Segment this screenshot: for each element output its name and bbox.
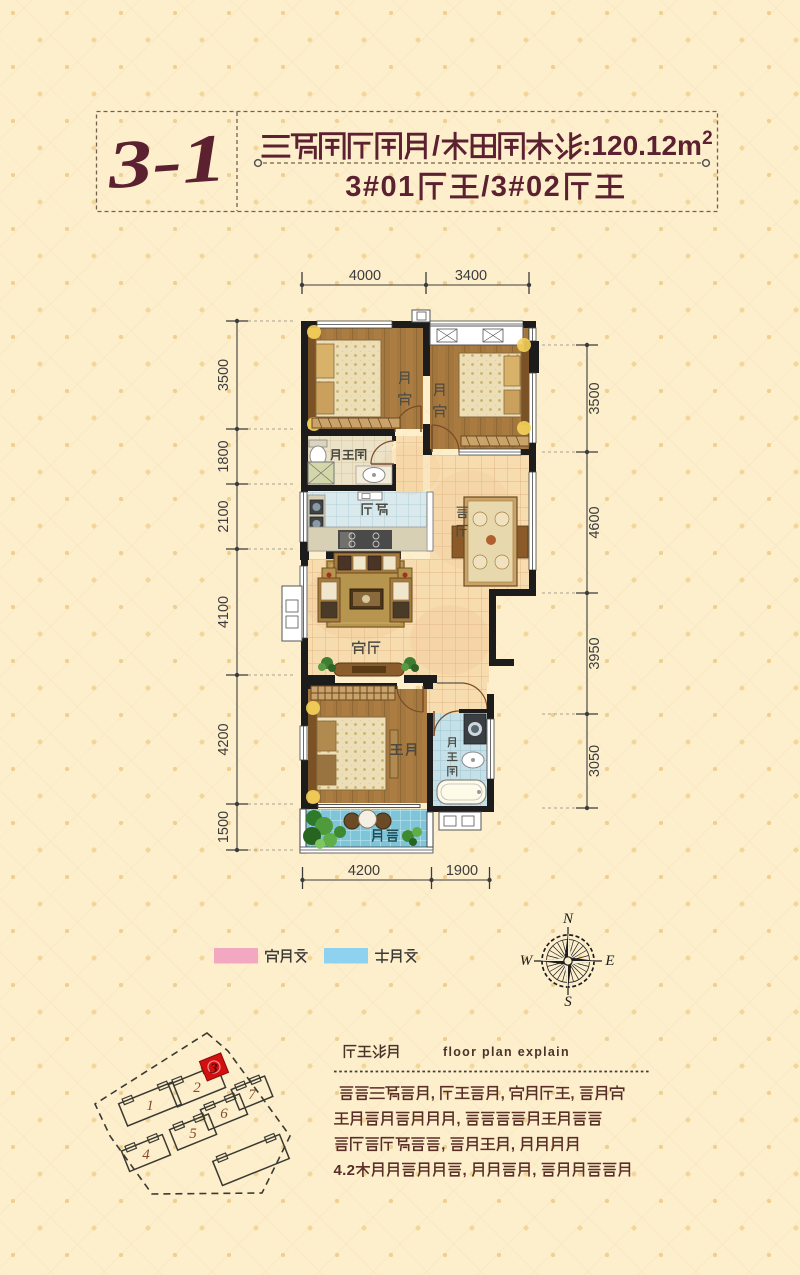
svg-text:1800: 1800	[216, 440, 232, 472]
svg-text:6: 6	[220, 1106, 228, 1122]
svg-text:,: ,	[463, 1162, 467, 1179]
svg-text:,: ,	[532, 1162, 536, 1179]
svg-text:1: 1	[146, 1098, 154, 1114]
svg-text:2100: 2100	[216, 500, 232, 532]
svg-text:,: ,	[501, 1085, 505, 1102]
svg-text:3950: 3950	[587, 637, 603, 669]
svg-text:,: ,	[441, 1136, 445, 1153]
svg-text:3400: 3400	[455, 268, 487, 284]
svg-text:4000: 4000	[349, 268, 381, 284]
svg-text:,: ,	[570, 1085, 574, 1102]
svg-text:4600: 4600	[587, 506, 603, 538]
svg-text:S: S	[564, 994, 572, 1010]
svg-text:/3#02: /3#02	[481, 171, 561, 203]
svg-text:3500: 3500	[587, 382, 603, 414]
svg-text:2: 2	[193, 1080, 201, 1096]
svg-text:4.2: 4.2	[334, 1162, 356, 1179]
svg-text:3: 3	[209, 1061, 218, 1077]
svg-text:4100: 4100	[216, 596, 232, 628]
svg-text:,: ,	[431, 1085, 435, 1102]
svg-text::120.12m: :120.12m	[582, 130, 702, 161]
svg-text:/: /	[432, 130, 440, 161]
svg-text:W: W	[520, 953, 534, 969]
svg-text:3#01: 3#01	[345, 171, 416, 203]
svg-text:4: 4	[142, 1147, 150, 1163]
svg-text:2: 2	[702, 128, 713, 149]
svg-text:3050: 3050	[587, 745, 603, 777]
svg-text:N: N	[562, 911, 574, 927]
svg-text:E: E	[604, 953, 614, 969]
svg-text:3500: 3500	[216, 359, 232, 391]
svg-text:1900: 1900	[446, 863, 478, 879]
svg-text:4200: 4200	[216, 723, 232, 755]
svg-text:,: ,	[456, 1111, 460, 1128]
svg-text:5: 5	[189, 1126, 197, 1142]
svg-text:,: ,	[511, 1136, 515, 1153]
svg-text:4200: 4200	[348, 863, 380, 879]
svg-text:floor plan explain: floor plan explain	[443, 1045, 570, 1059]
svg-text:3-1: 3-1	[104, 120, 228, 203]
svg-text:1500: 1500	[216, 811, 232, 843]
